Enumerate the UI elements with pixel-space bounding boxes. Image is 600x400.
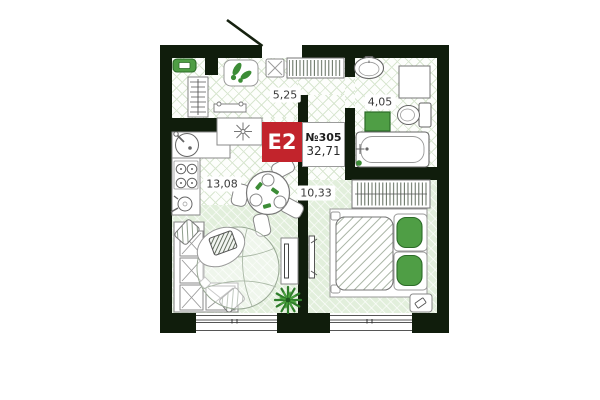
floor-bathroom-doorway <box>345 77 355 108</box>
entrance-door-icon <box>227 20 263 46</box>
bedroom-area: 10,33 <box>300 187 332 200</box>
unit-number: №305 <box>305 131 341 144</box>
layout-type-badge: E2 <box>262 122 302 162</box>
window-bedroom-icon <box>330 313 412 334</box>
wall-top-right <box>302 45 449 58</box>
wall-right <box>437 45 449 333</box>
wall-hall-kitchen <box>172 118 217 132</box>
room-area-label-bathroom: 4,05 <box>365 95 396 110</box>
window-living-icon <box>196 313 277 334</box>
wall-bottom-1 <box>160 313 196 333</box>
floor-entry <box>298 58 345 95</box>
unit-info-box: №305 32,71 <box>302 122 345 167</box>
kitchen-living-area: 13,08 <box>206 178 238 191</box>
wall-bath-left-low <box>345 108 355 180</box>
wall-bath-bottom <box>355 167 437 180</box>
hallway-area: 5,25 <box>273 89 298 102</box>
bathroom-area: 4,05 <box>368 96 393 109</box>
room-area-label-kitchen-living: 13,08 <box>203 177 241 192</box>
layout-type-label: E2 <box>268 130 297 154</box>
floor-bathroom <box>355 58 437 167</box>
wall-entry-stub <box>205 45 218 75</box>
floor-living <box>172 205 298 313</box>
wall-bath-left-top <box>345 58 355 77</box>
wall-bottom-2 <box>277 313 330 333</box>
wall-left <box>160 45 172 333</box>
wall-bottom-3 <box>412 313 449 333</box>
floor-plan: 5,25 4,05 13,08 10,33 E2 №305 32,71 <box>0 0 600 400</box>
room-area-label-bedroom: 10,33 <box>297 186 335 201</box>
unit-total-area: 32,71 <box>306 144 340 158</box>
room-area-label-hallway: 5,25 <box>270 88 301 103</box>
